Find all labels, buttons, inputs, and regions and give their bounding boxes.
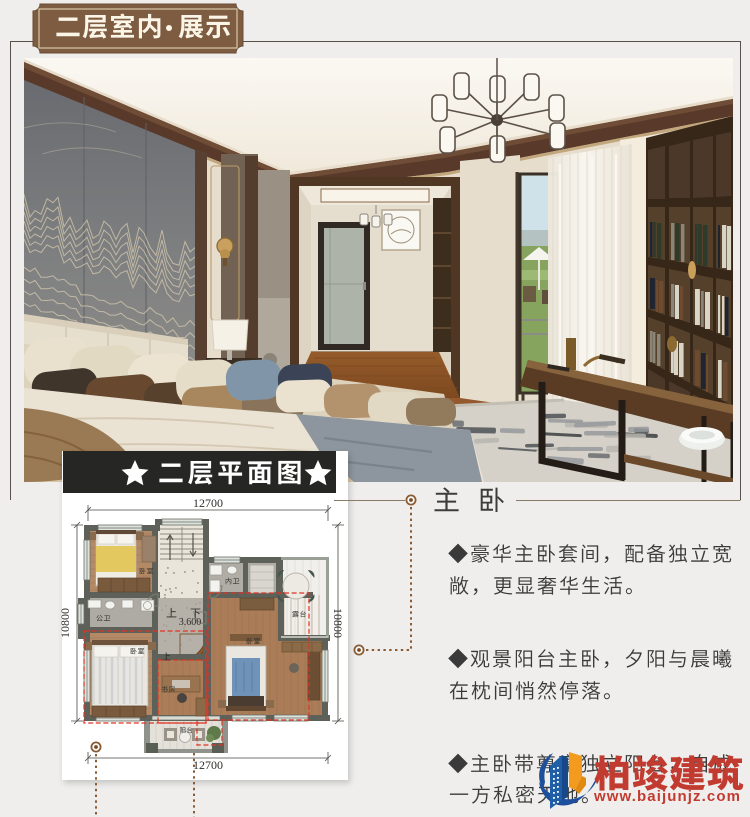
svg-text:www.baijunjz.com: www.baijunjz.com: [593, 788, 741, 805]
